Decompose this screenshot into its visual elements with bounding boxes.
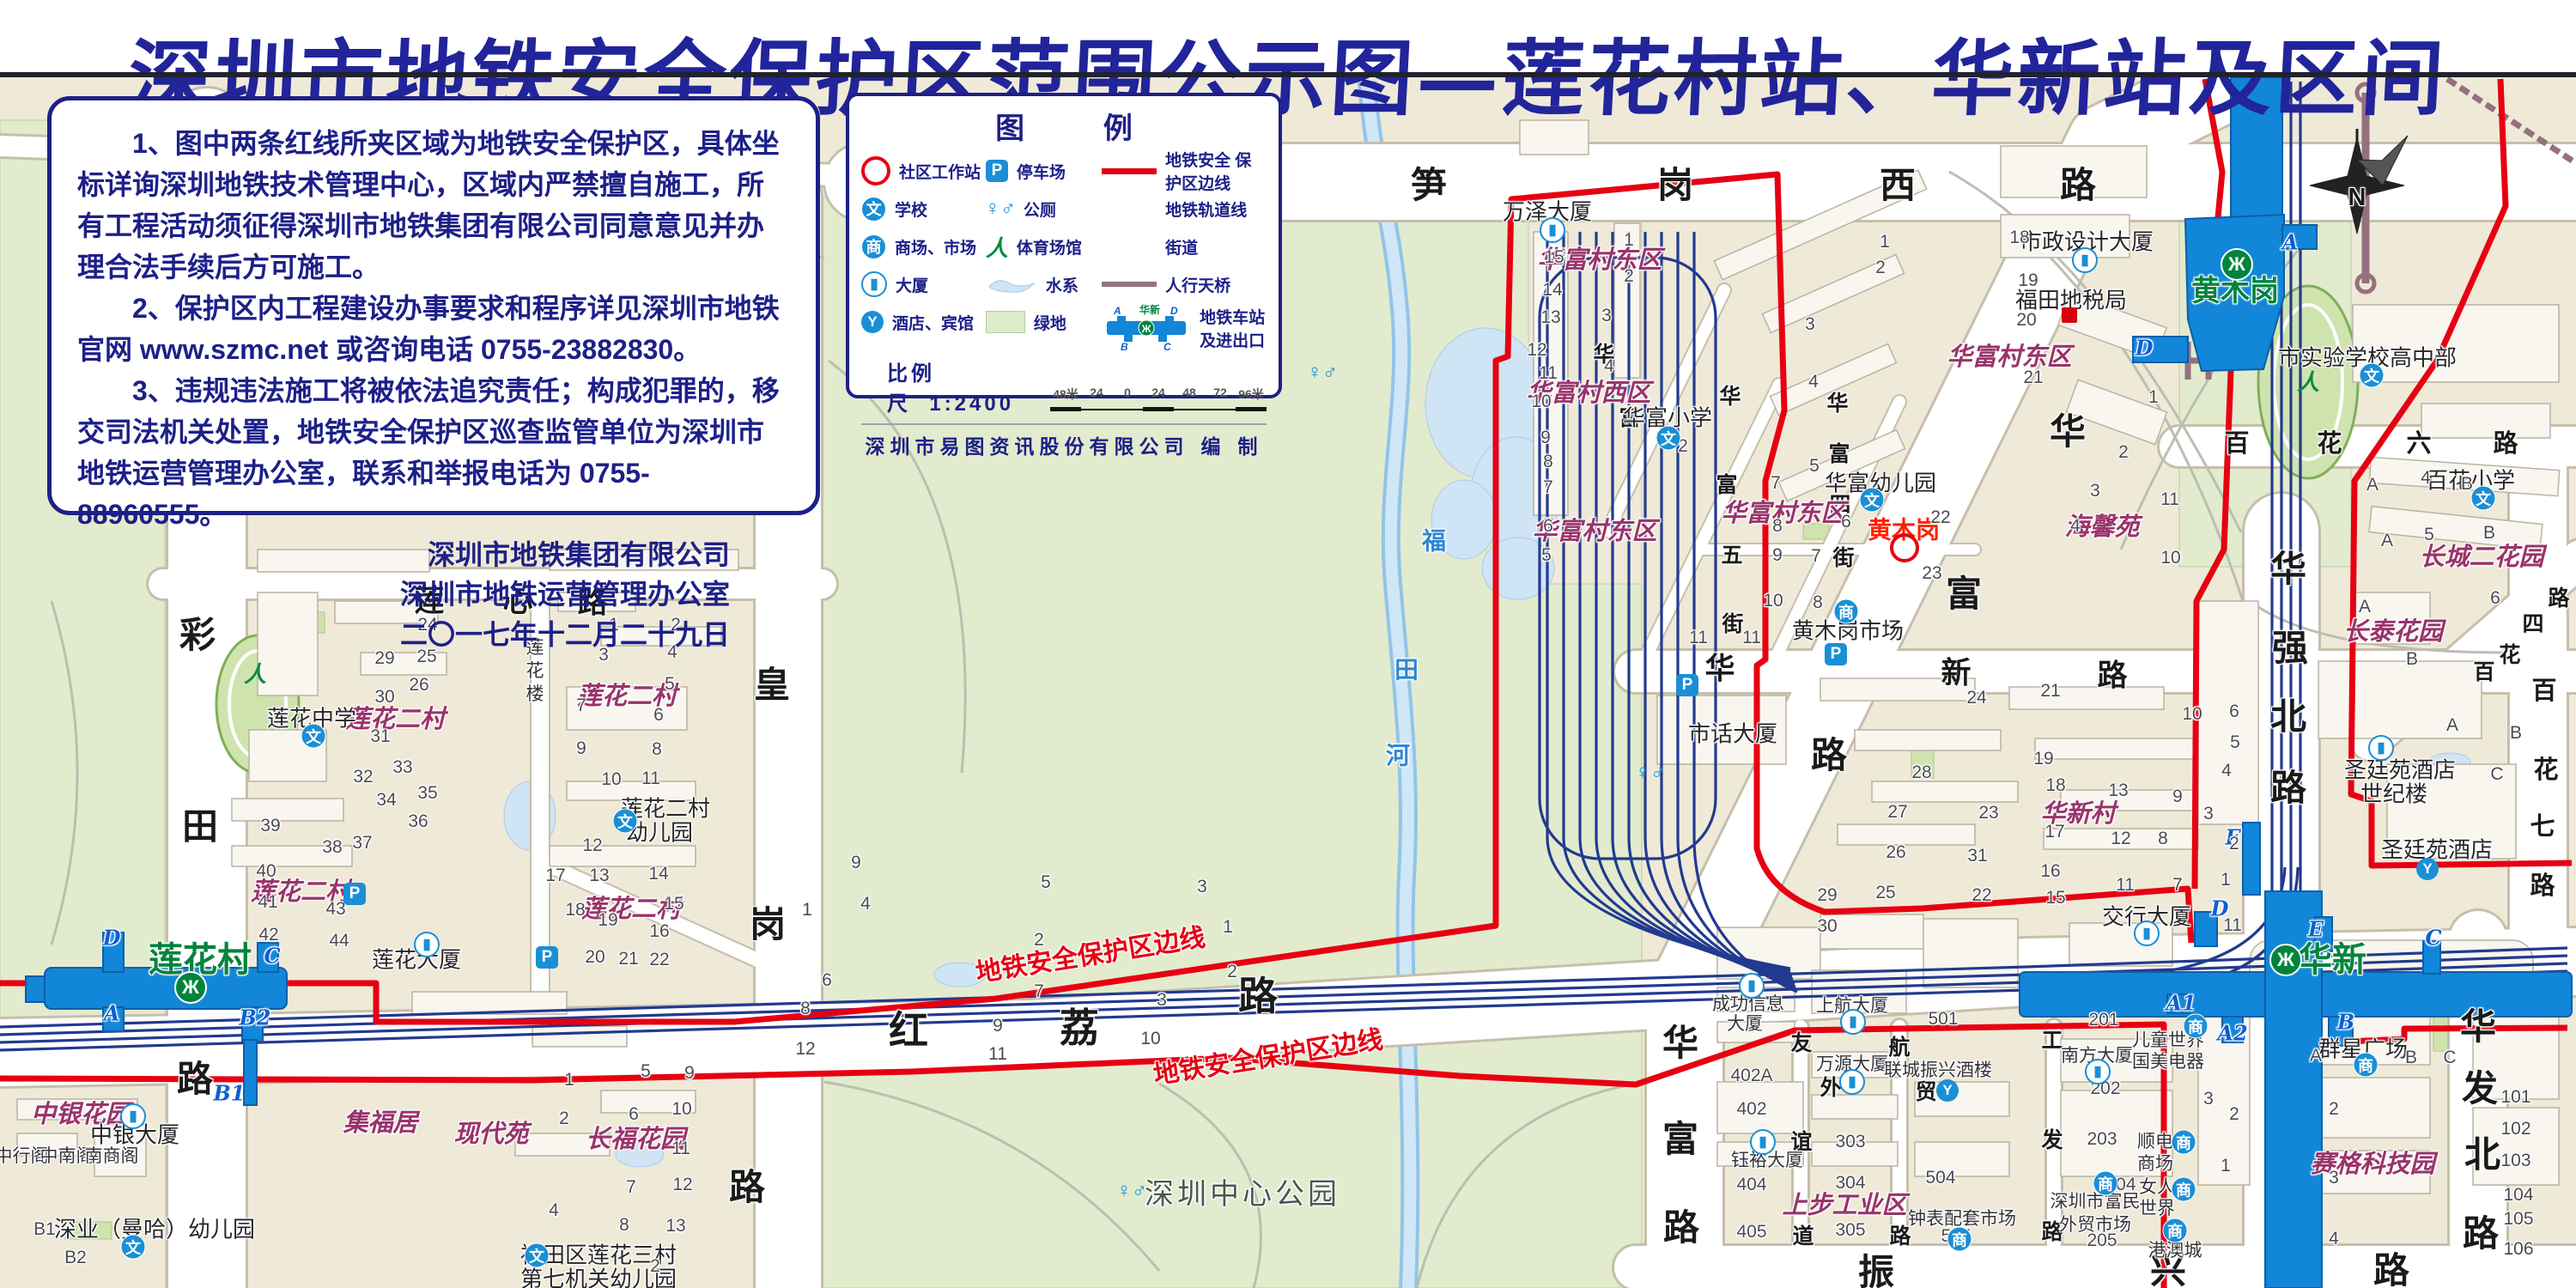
- map-label: 23: [1922, 564, 1941, 583]
- map-label: 23: [1978, 804, 1998, 823]
- community-station-icon: [861, 156, 890, 185]
- protection-line-icon: [1102, 168, 1157, 174]
- toilet-icon: ♀♂: [1117, 1181, 1146, 1201]
- map-label: 3: [1805, 315, 1815, 334]
- map-label: 街: [1832, 547, 1854, 569]
- map-label: 1: [1223, 918, 1233, 937]
- building-icon: ▮: [1739, 973, 1765, 999]
- map-label: E: [2308, 918, 2324, 939]
- map-label: 百: [2531, 678, 2556, 704]
- market-icon: 商: [2172, 1177, 2196, 1202]
- map-label: 强: [2272, 629, 2308, 667]
- map-label: 402A: [1730, 1066, 1772, 1085]
- map-label: 钰裕大厦: [1731, 1151, 1803, 1170]
- green-area-icon: [986, 311, 1025, 333]
- building-icon: ▮: [1750, 1129, 1776, 1155]
- map-label: 5: [1541, 546, 1552, 565]
- map-label: 37: [352, 834, 372, 853]
- map-label: 华: [1826, 392, 1848, 415]
- scale-tick: 72: [1205, 386, 1236, 403]
- building-icon: ▮: [414, 932, 440, 957]
- footbridge-icon: [1102, 282, 1157, 287]
- market-icon: 商: [2093, 1171, 2118, 1196]
- school-icon: 文: [1656, 426, 1681, 451]
- map-label: 道: [1792, 1225, 1814, 1248]
- map-label: 21: [2040, 682, 2060, 701]
- map-label: 36: [408, 812, 428, 831]
- map-label: 2: [1624, 267, 1634, 286]
- map-label: 振: [1858, 1254, 1894, 1288]
- map-label: 7: [576, 696, 586, 715]
- metro-logo: Ж: [174, 971, 207, 1004]
- map-label: 15: [1544, 248, 1564, 267]
- legend-label: 酒店、宾馆: [892, 311, 974, 334]
- legend-label: 公厕: [1024, 197, 1056, 221]
- map-label: 12: [1527, 341, 1546, 360]
- map-label: 花: [2499, 644, 2520, 666]
- map-label: 福: [1422, 528, 1446, 553]
- legend-box: 图 例 社区工作站 文学校 商商场、市场 ▮大厦 Y酒店、宾馆 P停车场 ♀♂公…: [846, 93, 1282, 398]
- map-label: D: [103, 927, 121, 948]
- building-icon: ▮: [2368, 735, 2394, 761]
- map-label: 402: [1736, 1100, 1766, 1119]
- map-label: 世界: [2139, 1200, 2175, 1218]
- map-label: 长城二花园: [2419, 544, 2543, 569]
- map-label: 6: [653, 706, 664, 725]
- map-label: 11: [1742, 629, 1761, 647]
- map-label: 11: [641, 769, 660, 788]
- map-label: 楼: [526, 685, 544, 704]
- notice-signature-company: 深圳市地铁集团有限公司: [77, 535, 730, 574]
- map-label: 106: [2503, 1240, 2533, 1259]
- map-label: 华富村东区: [1721, 500, 1845, 526]
- map-label: 2: [2118, 443, 2129, 462]
- map-label: 16: [649, 922, 669, 941]
- scale-tick: 96米: [1236, 386, 1267, 403]
- map-label: 14: [1542, 281, 1562, 300]
- map-label: 7: [1771, 474, 1781, 493]
- map-label: 上步工业区: [1782, 1192, 1906, 1218]
- map-label: 8: [800, 999, 811, 1018]
- map-label: 8: [1772, 517, 1783, 536]
- map-label: 31: [1967, 847, 1987, 866]
- building-icon: ▮: [1540, 217, 1565, 243]
- map-label: 富: [1662, 1121, 1698, 1158]
- map-label: 路: [2493, 431, 2518, 457]
- toilet-icon: ♀♂: [1636, 762, 1665, 783]
- scale-tick: 48: [1174, 386, 1205, 403]
- map-label: 2: [2229, 835, 2239, 854]
- map-label: 19: [598, 911, 617, 930]
- legend-credit: 深圳市易图资讯股份有限公司 编 制: [861, 423, 1267, 459]
- map-label: 18: [2009, 228, 2029, 247]
- map-label: 1: [2221, 1157, 2231, 1176]
- map-label: 12: [2111, 829, 2130, 848]
- toilet-icon: ♀♂: [1308, 362, 1337, 383]
- map-label: 5: [1809, 457, 1820, 476]
- map-label: 百: [2224, 431, 2249, 457]
- map-label: 17: [545, 866, 565, 885]
- map-label: 河: [1386, 743, 1410, 768]
- map-label: 顺电: [2137, 1133, 2173, 1151]
- map-label: 27: [1887, 803, 1907, 822]
- map-label: 6: [2229, 702, 2239, 721]
- map-label: 富: [1828, 443, 1850, 465]
- school-icon: 文: [2471, 486, 2496, 511]
- map-label: 路: [2097, 661, 2127, 693]
- map-label: 103: [2500, 1151, 2530, 1170]
- map-label: 深圳中心公园: [1145, 1180, 1340, 1211]
- map-label: 富: [1716, 474, 1737, 496]
- building-icon: ▮: [861, 271, 887, 297]
- map-label: 8: [652, 740, 662, 759]
- map-label: 女人: [2139, 1178, 2175, 1197]
- map-label: 20: [2016, 311, 2036, 330]
- map-label: 3: [2329, 1169, 2339, 1188]
- map-label: 14: [648, 865, 668, 884]
- map-label: A1: [2166, 992, 2196, 1013]
- map-label: 304: [1835, 1174, 1865, 1193]
- map-label: 2: [1227, 963, 1237, 981]
- scale-tick: 0: [1112, 386, 1143, 403]
- map-label: 3: [1601, 307, 1612, 325]
- legend-title: 图 例: [896, 105, 1267, 147]
- map-label: B: [2483, 524, 2495, 543]
- water-icon: [986, 273, 1037, 295]
- map-label: 31: [370, 727, 390, 746]
- legend-label: 商场、市场: [895, 235, 976, 258]
- school-icon: 文: [613, 809, 638, 834]
- map-label: 路: [2373, 1252, 2409, 1288]
- map-label: 19: [2018, 271, 2038, 290]
- map-label: 红: [889, 1010, 928, 1051]
- notice-signature-office: 深圳市地铁运营管理办公室: [77, 574, 730, 614]
- hotel-icon: Y: [861, 311, 884, 333]
- map-label: 201: [2088, 1011, 2118, 1030]
- svg-text:C: C: [1163, 341, 1171, 352]
- map-label: 6: [822, 971, 832, 990]
- scale-bar: 48米24024487296米: [1050, 386, 1267, 418]
- map-label: 花: [526, 662, 544, 681]
- map-label: 11: [2223, 916, 2242, 935]
- map-label: 笋: [1411, 167, 1447, 204]
- map-label: 10: [1531, 392, 1551, 411]
- map-label: 26: [1886, 843, 1905, 862]
- map-label: B2: [64, 1249, 87, 1267]
- map-label: 5: [1041, 873, 1051, 892]
- school-icon: 文: [121, 1235, 146, 1260]
- map-label: 友: [1790, 1032, 1812, 1054]
- notice-date: 二〇一七年十二月二十九日: [77, 615, 730, 654]
- map-frame-line: [0, 72, 2576, 77]
- map-label: 6: [629, 1105, 639, 1124]
- map-label: 19: [2033, 750, 2053, 769]
- map-label: 28: [1911, 763, 1931, 782]
- scale-tick: 24: [1143, 386, 1174, 403]
- svg-text:华新: 华新: [1139, 304, 1160, 316]
- map-label: 6: [2490, 589, 2500, 608]
- map-label: 30: [1817, 917, 1837, 936]
- scale-tick: 24: [1081, 386, 1112, 403]
- map-label: 4: [860, 895, 871, 914]
- map-label: 皇: [754, 666, 790, 704]
- building-icon: ▮: [2072, 247, 2098, 273]
- metro-logo: Ж: [2269, 944, 2302, 976]
- poster: { "title": "深圳市地铁安全保护区范围公示图—莲花村站、华新站及区间"…: [0, 0, 2576, 1288]
- map-label: 18: [565, 901, 585, 920]
- map-label: 路: [2548, 587, 2569, 610]
- map-label: A: [2282, 231, 2299, 252]
- market-icon: 商: [2354, 1053, 2379, 1078]
- legend-label: 地铁车站 及进出口: [1200, 305, 1267, 351]
- map-label: 13: [2108, 781, 2128, 800]
- map-label: 4: [2221, 762, 2232, 781]
- building-icon: ▮: [2134, 920, 2160, 946]
- map-label: 深业（曼哈）幼儿园: [54, 1218, 255, 1241]
- parking-icon: P: [1825, 643, 1847, 665]
- map-label: 12: [795, 1040, 815, 1059]
- map-label: 商场: [2137, 1155, 2173, 1174]
- map-label: 11: [2160, 490, 2179, 509]
- map-label: 西: [1880, 167, 1916, 204]
- map-label: 7: [1034, 982, 1044, 1001]
- map-label: C: [264, 945, 280, 966]
- map-label: 南商阁: [85, 1147, 139, 1166]
- hotel-icon: Y: [2416, 858, 2439, 880]
- map-label: 26: [409, 676, 428, 695]
- parking-icon: P: [536, 946, 558, 969]
- map-label: 205: [2087, 1231, 2117, 1250]
- building-icon: ▮: [1840, 1009, 1866, 1035]
- map-label: B: [2406, 650, 2418, 669]
- map-label: 3: [2090, 482, 2100, 501]
- map-label: 花: [2533, 757, 2558, 783]
- map-label: 8: [619, 1216, 629, 1235]
- legend-label: 街道: [1165, 235, 1198, 258]
- legend-label: 地铁安全 保护区边线: [1165, 148, 1267, 194]
- map-label: 工: [2041, 1030, 2063, 1052]
- map-label: 华: [1719, 386, 1741, 408]
- map-label: C: [2443, 1048, 2456, 1067]
- map-label: 田: [1394, 657, 1419, 682]
- map-label: A: [2381, 532, 2393, 550]
- map-label: 11: [1539, 364, 1558, 383]
- hotel-icon: Y: [1936, 1079, 1959, 1102]
- map-label: 田: [182, 808, 218, 846]
- map-label: 41: [258, 893, 277, 912]
- map-label: 11: [2116, 876, 2135, 895]
- map-label: 3: [1157, 991, 1167, 1010]
- map-label: 港澳城: [2148, 1242, 2202, 1261]
- map-label: 贸: [1915, 1081, 1936, 1103]
- map-label: 华: [1662, 1024, 1698, 1062]
- building-icon: ▮: [120, 1103, 146, 1129]
- map-label: 25: [1875, 884, 1895, 902]
- map-label: 303: [1835, 1133, 1865, 1151]
- map-label: 华富村东区: [1947, 343, 2071, 369]
- map-label: 花: [2317, 431, 2342, 457]
- map-label: 7: [2172, 876, 2183, 895]
- parking-icon: P: [1676, 674, 1698, 696]
- map-label: 35: [417, 784, 437, 803]
- legend-label: 社区工作站: [899, 160, 981, 183]
- map-label: 现代苑: [453, 1121, 528, 1146]
- map-label: 地铁安全保护区边线: [1151, 1026, 1385, 1089]
- map-label: B1: [214, 1082, 246, 1103]
- map-label: 7: [1543, 478, 1553, 497]
- community-station-icon: [1890, 533, 1919, 562]
- map-label: 30: [374, 688, 394, 707]
- map-label: 1: [1624, 231, 1634, 250]
- map-label: 6: [1841, 513, 1851, 532]
- map-label: 12: [582, 836, 602, 855]
- svg-text:B: B: [1121, 341, 1128, 352]
- map-label: 404: [1736, 1176, 1766, 1194]
- street-line-icon: [1102, 243, 1157, 250]
- map-label: 华: [2050, 413, 2086, 451]
- map-label: 17: [2044, 823, 2064, 841]
- map-label: 4: [2329, 1230, 2339, 1249]
- map-label: 1: [1880, 233, 1890, 252]
- map-label: 圣廷苑酒店: [2344, 758, 2456, 781]
- map-label: 4: [2421, 469, 2431, 488]
- map-label: 21: [618, 950, 638, 969]
- map-label: 10: [1763, 592, 1783, 611]
- map-label: 1: [802, 901, 812, 920]
- toilet-icon: ♀♂: [986, 198, 1015, 219]
- map-label: 7: [1811, 547, 1821, 566]
- map-label: 荔: [1060, 1007, 1099, 1048]
- map-label: 路: [2530, 873, 2555, 899]
- map-label: 5: [641, 1062, 651, 1081]
- map-label: 街: [1722, 613, 1743, 635]
- map-label: 10: [1140, 1030, 1160, 1048]
- map-label: 501: [1928, 1010, 1958, 1029]
- market-icon: 商: [861, 234, 886, 259]
- map-label: 岗: [1657, 167, 1693, 204]
- school-icon: 文: [301, 724, 326, 749]
- map-label: 203: [2087, 1130, 2117, 1149]
- map-label: 13: [1540, 308, 1560, 327]
- map-label: 北: [2464, 1136, 2500, 1174]
- map-label: C: [2425, 927, 2441, 948]
- map-label: 路: [729, 1169, 765, 1206]
- legend-label: 地铁轨道线: [1165, 197, 1247, 221]
- map-label: 11: [1689, 629, 1708, 647]
- map-label: 五: [1721, 544, 1742, 567]
- map-label: 10: [671, 1100, 691, 1119]
- map-label: 8: [1813, 593, 1823, 612]
- map-label: 4: [1604, 357, 1614, 376]
- map-label: 七: [2530, 814, 2555, 840]
- svg-text:Ж: Ж: [1141, 323, 1151, 335]
- map-label: 六: [2406, 431, 2431, 457]
- map-label: 11: [988, 1045, 1007, 1064]
- map-label: 岗: [750, 906, 786, 944]
- market-icon: 商: [2163, 1218, 2188, 1243]
- map-label: 华: [2270, 550, 2306, 588]
- map-label: 1: [564, 1071, 574, 1090]
- station-label-huangmugang: 黄木岗: [2191, 276, 2279, 307]
- map-label: 路: [1811, 737, 1847, 775]
- map-label: 联城振兴酒楼: [1884, 1061, 1992, 1080]
- notice-box: 1、图中两条红线所夹区域为地铁安全保护区，具体坐标详询深圳地铁技术管理中心，区域…: [47, 96, 820, 515]
- sports-icon: 人: [986, 235, 1008, 258]
- map-label: A: [2366, 476, 2379, 495]
- map-label: 44: [329, 932, 349, 951]
- map-label: 32: [353, 768, 373, 787]
- building-icon: ▮: [2085, 1059, 2111, 1084]
- map-label: B2: [240, 1006, 271, 1028]
- map-label: 504: [1925, 1169, 1955, 1188]
- sports-icon: 人: [2297, 369, 2319, 392]
- map-label: 长泰花园: [2343, 618, 2443, 644]
- map-label: 5: [2230, 733, 2240, 752]
- map-label: 405: [1736, 1223, 1766, 1242]
- market-icon: 商: [2172, 1130, 2196, 1155]
- legend-label: 大厦: [896, 273, 928, 296]
- map-label: 40: [256, 862, 276, 881]
- map-label: 15: [2045, 889, 2065, 908]
- parking-icon: P: [986, 160, 1008, 182]
- map-label: 20: [585, 948, 605, 967]
- map-label: 2: [2229, 1105, 2239, 1124]
- station-sample-icon: A 华新 D Ж B C: [1102, 304, 1191, 352]
- map-label: 6: [1543, 517, 1553, 536]
- building-icon: ▮: [1839, 1069, 1865, 1095]
- map-label: 33: [392, 758, 412, 777]
- map-label: 8: [2158, 829, 2168, 848]
- map-label: 2: [559, 1109, 569, 1128]
- map-label: 10: [601, 770, 621, 789]
- map-label: 航: [1888, 1036, 1910, 1059]
- station-label-huaxin: 华新: [2298, 942, 2366, 978]
- school-icon: 文: [861, 197, 886, 222]
- map-label: 102: [2500, 1120, 2530, 1139]
- legend-label: 体育场馆: [1017, 235, 1082, 258]
- map-label: 15: [664, 895, 683, 914]
- map-label: 8: [1543, 453, 1553, 471]
- map-label: 路: [2060, 167, 2096, 204]
- map-label: 2: [1875, 258, 1886, 277]
- tax-office-icon: [2062, 307, 2077, 323]
- map-label: 305: [1835, 1221, 1865, 1240]
- market-icon: 商: [1834, 599, 1859, 624]
- map-label: A: [2359, 598, 2371, 617]
- map-label: 长福花园: [586, 1126, 685, 1151]
- map-label: B: [2337, 1011, 2354, 1032]
- market-icon: 商: [1947, 1227, 1972, 1252]
- map-label: 18: [2045, 776, 2065, 795]
- map-label: C: [2490, 765, 2503, 784]
- map-label: 9: [1540, 428, 1551, 447]
- legend-label: 停车场: [1017, 160, 1066, 183]
- map-label: 发: [2041, 1129, 2063, 1151]
- map-label: 9: [993, 1017, 1003, 1036]
- map-label: 105: [2503, 1210, 2533, 1229]
- map-label: 4: [2070, 517, 2081, 536]
- map-label: 3: [2203, 805, 2214, 823]
- map-label: 21: [2023, 368, 2043, 387]
- map-label: 9: [1772, 546, 1783, 565]
- map-label: 3: [1197, 878, 1207, 896]
- map-label: 42: [258, 926, 278, 945]
- parking-icon: P: [343, 883, 366, 905]
- map-label: 39: [260, 817, 280, 835]
- scale-tick: 48米: [1050, 386, 1081, 403]
- map-label: 1: [2221, 871, 2231, 890]
- map-label: 新: [1941, 659, 1971, 690]
